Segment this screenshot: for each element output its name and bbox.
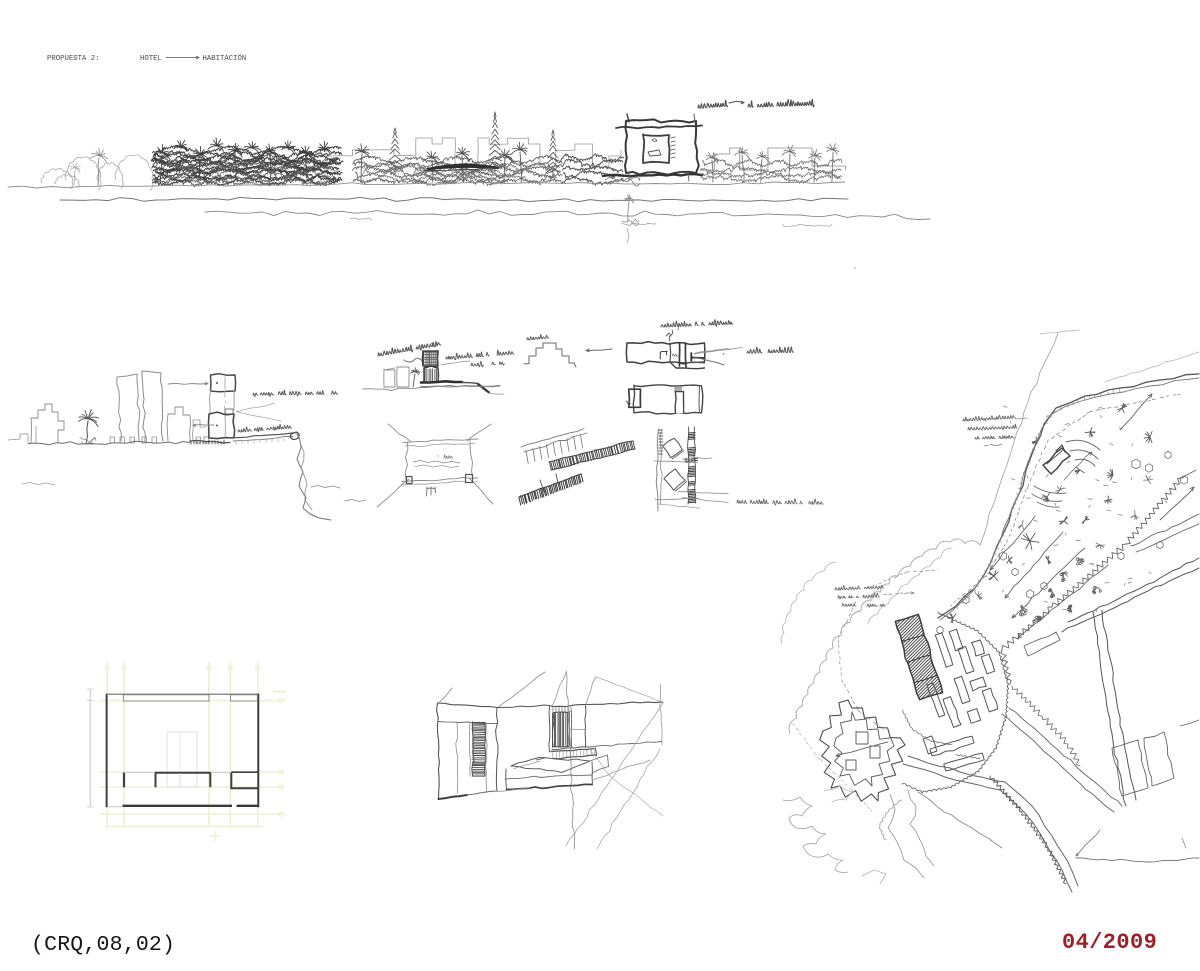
svg-text:PROPUESTA 2:: PROPUESTA 2: (47, 55, 100, 63)
svg-text:HABITACIÓN: HABITACIÓN (203, 53, 247, 63)
svg-text:04/2009: 04/2009 (1062, 930, 1157, 955)
svg-text:(CRQ,08,02): (CRQ,08,02) (31, 933, 175, 957)
svg-text:HOTEL: HOTEL (140, 55, 162, 63)
